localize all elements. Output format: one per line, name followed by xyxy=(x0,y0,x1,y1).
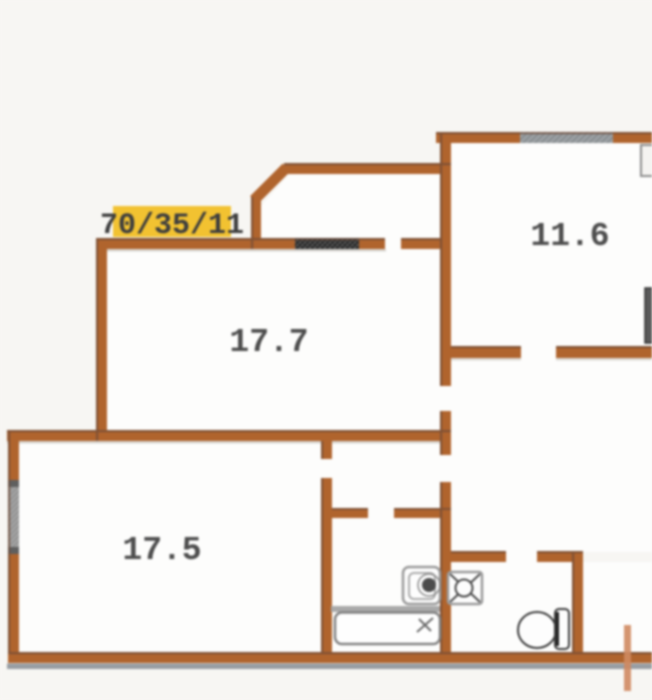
svg-text:17.7: 17.7 xyxy=(229,324,308,361)
svg-text:70/35/11: 70/35/11 xyxy=(100,209,244,243)
svg-text:11.6: 11.6 xyxy=(530,218,609,255)
svg-text:17.5: 17.5 xyxy=(122,532,201,569)
